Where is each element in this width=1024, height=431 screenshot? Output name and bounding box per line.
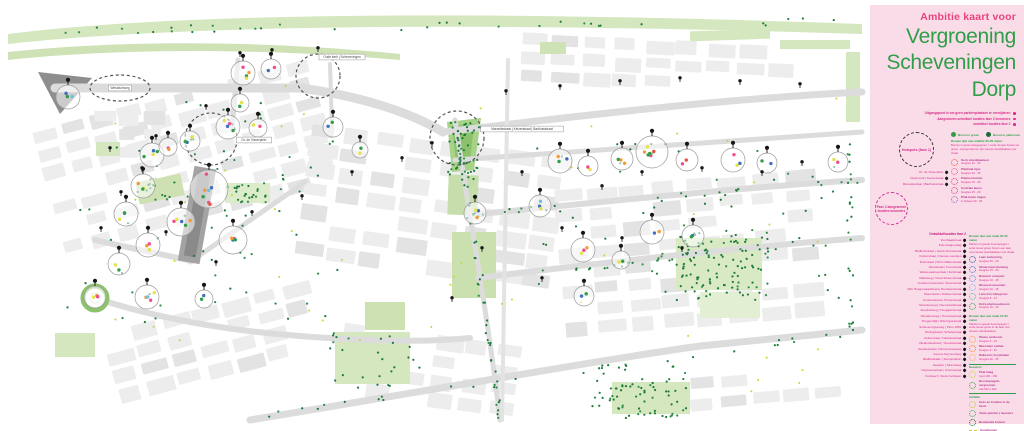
category-ring-icon: [969, 336, 976, 343]
category-label: Laan zuilvormighoogtes 15 - 20: [979, 256, 1002, 263]
tree-key: Boom in groen: [951, 132, 979, 137]
map-pin-icon: [963, 314, 967, 318]
street-item: Zeekant | Strandweg: [907, 363, 966, 368]
category-sub: rond 100 - 150: [979, 375, 997, 378]
category-label: Bestaande bomen: [979, 421, 1005, 425]
category-sub: hoogtes 15 - 20: [979, 306, 1010, 309]
group-header: Ambitie: [969, 393, 1016, 399]
map-pin-icon: [963, 276, 967, 280]
map-pin-icon: [963, 358, 967, 362]
map-pin-icon: [963, 374, 967, 378]
bullet-dot-icon: [1013, 118, 1016, 121]
cluster-marker: [721, 141, 745, 172]
category-ring-icon: [969, 401, 976, 408]
legend-category: Dakvorm | lei plataanhoogtes 20 - 25: [969, 354, 1016, 361]
tree-key-label: Boom in groen: [958, 133, 979, 137]
street-item: Marktweg | Vissershavenstraat: [907, 276, 966, 281]
legend-panel: Ambitie kaart voor Vergroening Schevenin…: [870, 5, 1024, 424]
street-item: Weststraat | Torenstraat: [907, 265, 966, 270]
svg-text:Westduinweg: Westduinweg: [110, 86, 129, 90]
map-canvas: WestduinwegDr. de VisserpleinOude kerk |…: [0, 0, 872, 431]
hotspot-item: Marcelisstraat | Badhuisstraat: [903, 182, 948, 187]
cluster-marker: [136, 226, 160, 257]
cluster-marker: [529, 188, 551, 217]
category-sub: hoogtes 6 - 10: [979, 340, 1002, 343]
legend-category: Extra plantsoenboomhoogtes 15 - 20: [969, 303, 1016, 310]
legend-category: Vaste planten | heesters: [969, 410, 1016, 417]
bullet-dot-icon: [1013, 123, 1016, 126]
category-label: Pleinen bomenhoogtes 15 - 20: [961, 177, 982, 184]
fase2-section: Ontwikkellocaties fase 2 VuurbaakstraatK…: [878, 232, 1016, 431]
category-ring-icon: [969, 371, 976, 378]
map-pin-icon: [945, 176, 949, 180]
category-sub: hoogtes 10 - 15: [961, 162, 989, 165]
map-pin-icon: [963, 309, 967, 313]
map-kicker: Ambitie kaart voor: [878, 11, 1016, 23]
legend-category: Kleine sierboomhoogtes 6 - 10: [969, 336, 1016, 343]
legend-category: Bloesem accentenhoogtes 10 - 15: [969, 284, 1016, 291]
category-ring-icon: [969, 345, 976, 352]
street-label: Weststraat | Torenstraat: [929, 265, 962, 270]
street-label: Zeekant | Strandweg: [933, 363, 962, 368]
street-label: Badhuisstraat | Jacob Pronkstraat: [915, 249, 961, 254]
map-pin-icon: [963, 331, 967, 335]
cluster-marker: [828, 145, 848, 172]
poster: WestduinwegDr. de VisserpleinOude kerk |…: [0, 0, 1024, 431]
map-pin-icon: [963, 238, 967, 242]
street-label: Neptunusstraat | Circusstraat: [921, 368, 961, 373]
hotspots-badge: Hotspots (fase 1): [899, 132, 934, 167]
cluster-marker: [135, 278, 159, 309]
legend-category: Meerstam solitairhoogtes 6 - 10: [969, 345, 1016, 352]
bullet-text: Aangewezen ontwikkel locaties fase 2 bew…: [937, 117, 1010, 121]
street-item: Kolenwagenslag: [907, 243, 966, 248]
street-item: Ankerstraat | Nautilusstraat: [907, 336, 966, 341]
map-pin-icon: [963, 347, 967, 351]
cluster-marker: [611, 141, 633, 170]
category-label: Pluk haagrond 100 - 150: [979, 371, 997, 378]
category-ring-icon: [969, 275, 976, 282]
category-sub: in beheer 20 - 25: [961, 200, 986, 203]
street-item: Keizerstraat | Nieuwe Laantjes: [907, 254, 966, 259]
street-item: Kerkwerf | Oude Kerkplein: [907, 374, 966, 379]
cluster-marker: [195, 283, 213, 308]
street-item: Havenkade | Datheenstraat: [907, 292, 966, 297]
title-line-3: Dorp: [878, 77, 1016, 103]
cluster-marker: [574, 279, 594, 306]
legend-category: Gras en kruiden in de berm: [969, 401, 1016, 409]
category-label: Meerstam solitairhoogtes 6 - 10: [979, 345, 1004, 352]
legend-category: Plantvak rijenhoogtes 10 - 15: [951, 168, 1023, 175]
street-label: Kolenwagenslag: [939, 243, 962, 248]
category-title: Gras en kruiden in de berm: [979, 401, 1016, 409]
title-line-1: Vergroening: [878, 24, 1016, 50]
fase1-section: Hotspots (fase 1) Dr. de VisserpleinOude…: [878, 132, 1016, 227]
map-pin-icon: [963, 293, 967, 297]
bullet-text: ontwikkel locaties fase 2: [973, 122, 1010, 126]
map-pin-icon: [963, 244, 967, 248]
category-title: Bestaande bomen: [979, 421, 1005, 425]
legend-category: Leivorm | klimgroenhoogtes 8 - 12: [969, 293, 1016, 300]
street-label: Keizerstraat | Nieuwe Laantjes: [920, 254, 962, 259]
legend-category: Laan zuilvormighoogtes 15 - 20: [969, 256, 1016, 263]
hotspot-item: Oude kerk | Keizerstraat: [903, 176, 948, 181]
street-label: Ankerstraat | Nautilusstraat: [924, 336, 961, 341]
hotspot-label: Dr. de Visserplein: [919, 170, 943, 175]
street-item: Scheveningseweg | Plein 1881: [907, 325, 966, 330]
intro-bullets: Uitgangspunt is om geen parkeerplaatsen …: [878, 111, 1016, 126]
hotspot-list: Dr. de VisserpleinOude kerk | Keizerstra…: [903, 170, 948, 186]
category-ring-icon: [969, 284, 976, 291]
map-title: Vergroening Scheveningen Dorp: [878, 24, 1016, 103]
title-line-2: Scheveningen: [878, 50, 1016, 76]
category-sub: hoogtes 15 - 20: [961, 181, 982, 184]
intro-bullet: Uitgangspunt is om geen parkeerplaatsen …: [878, 111, 1016, 115]
map-pin-icon: [963, 369, 967, 373]
street-item: Duinstraat | Prins Willemstraat: [907, 260, 966, 265]
street-label: Vlielandsestraat | Texelsestraat: [919, 341, 962, 346]
map-pin-icon: [963, 265, 967, 269]
street-item: Zwolsestraat | Harstenhoekweg: [907, 347, 966, 352]
cluster-marker: [640, 213, 664, 244]
note-body: Planten in goede boomspiegel = extra nie…: [969, 323, 1016, 334]
legend-note-1: Bomen lijst met ambitie 20-25 meter Bome…: [951, 140, 1023, 155]
hotspot-item: Dr. de Visserplein: [903, 170, 948, 175]
tree-key: Boom in plantsoen: [986, 132, 1020, 137]
street-item: Wassenaarsestraat | Zeilstraat: [907, 270, 966, 275]
map-pin-icon: [945, 182, 949, 186]
category-ring-icon: [951, 178, 958, 185]
tree-dot-icon: [986, 132, 991, 137]
category-sub: hoogtes 15 - 20: [979, 269, 1008, 272]
note-body: Planten in goede boomspiegel = extra nie…: [969, 243, 1016, 254]
street-label: Gevers Deynootweg: [933, 352, 961, 357]
category-label: Gras en kruiden in de berm: [979, 401, 1016, 409]
intro-bullet: Aangewezen ontwikkel locaties fase 2 bew…: [878, 117, 1016, 121]
legend-note: Bomen lijst met maat 20-25 meterPlanten …: [969, 235, 1016, 254]
street-label: Marktweg | Vissershavenstraat: [919, 276, 961, 281]
legend-note: Bomen lijst met maat 15-20 meterPlanten …: [969, 315, 1016, 334]
map-pin-icon: [963, 325, 967, 329]
street-label: Westduinweg | Tesselsestraat: [921, 314, 962, 319]
category-label: Bloesem accentenhoogtes 10 - 15: [979, 284, 1005, 291]
street-item: Zeesluisweg | Hoogaarsstraat: [907, 308, 966, 313]
category-sub: hoogtes 10 - 15: [979, 279, 1004, 282]
category-sub: hoogtes 8 - 12: [979, 297, 1008, 300]
street-label: Wassenaarsestraat | Zeilstraat: [920, 270, 962, 275]
category-label: Plantvak rijenhoogtes 10 - 15: [961, 168, 981, 175]
svg-text:Dr. de Visserplein: Dr. de Visserplein: [242, 138, 267, 142]
category-sub: hoogtes 10 - 15: [961, 172, 981, 175]
street-item: Jurriaan Kokstraat | Stevinstraat: [907, 281, 966, 286]
category-title: Vaste planten | heesters: [979, 412, 1013, 416]
category-sub: vak 100 x 100: [979, 388, 1016, 391]
category-ring-icon: [969, 303, 976, 310]
map-pin-icon: [963, 260, 967, 264]
category-ring-icon: [951, 187, 958, 194]
street-item: Westduinweg | Tesselsestraat: [907, 314, 966, 319]
svg-text:Oude kerk | Scheveningen: Oude kerk | Scheveningen: [323, 55, 361, 59]
street-label: Kerkwerf | Oude Kerkplein: [925, 374, 961, 379]
street-item: Neptunusstraat | Circusstraat: [907, 368, 966, 373]
fase1-left-column: Hotspots (fase 1) Dr. de VisserpleinOude…: [878, 132, 948, 227]
category-ring-icon: [969, 410, 976, 417]
street-label: Dirk Hoogenraadstraat | Renbaanstraat: [907, 287, 961, 292]
category-ring-icon: [951, 196, 958, 203]
cluster-marker: [548, 142, 572, 173]
street-label: Vuurbaakstraat: [941, 238, 962, 243]
street-label: Schuitenweg | Heemraadstraat: [919, 303, 961, 308]
category-ring-icon: [951, 168, 958, 175]
legend-category: Bestaande bomen: [969, 419, 1016, 426]
category-sub: hoogtes 15 - 20: [961, 191, 982, 194]
category-label: Centrale lanenhoogtes 15 - 20: [961, 187, 982, 194]
map-pin-icon: [963, 320, 967, 324]
legend-category: Pluk haagrond 100 - 150: [969, 371, 1016, 378]
cluster-marker: [636, 129, 668, 168]
svg-text:Marcelisstraat | Keizerstraat: Marcelisstraat | Keizerstraat | Badhuiss…: [491, 127, 553, 131]
cluster-marker: [323, 110, 343, 137]
map-pin-icon: [963, 352, 967, 356]
category-ring-icon: [969, 382, 976, 389]
street-item: Vlielandsestraat | Texelsestraat: [907, 341, 966, 346]
category-ring-icon: [969, 419, 976, 426]
intro-bullet: ontwikkel locaties fase 2: [878, 122, 1016, 126]
street-item: Haringstraat | Schelpstraat: [907, 330, 966, 335]
legend-category: Centrale lanenhoogtes 15 - 20: [951, 187, 1023, 194]
street-label: Duinstraat | Prins Willemstraat: [920, 260, 962, 265]
category-sub: hoogtes 15 - 20: [979, 260, 1002, 263]
map-pin-icon: [963, 298, 967, 302]
category-label: Pluk-lanen hagenin beheer 20 - 25: [961, 196, 986, 203]
street-item: Korbootstraat | Pluvierstraat: [907, 298, 966, 303]
category-ring-icon: [969, 256, 976, 263]
hotspot-label: Marcelisstraat | Badhuisstraat: [903, 182, 944, 187]
tree-key-label: Boom in plantsoen: [993, 133, 1020, 137]
streets-column: Ontwikkellocaties fase 2 VuurbaakstraatK…: [878, 232, 966, 431]
street-item: Badhuiskade | Seinpostduin: [907, 357, 966, 362]
category-ring-icon: [969, 354, 976, 361]
tree-key-row: Boom in groenBoom in plantsoen: [951, 132, 1023, 137]
legend-category: Straat meerstammighoogtes 15 - 20: [969, 266, 1016, 273]
map-pin-icon: [963, 282, 967, 286]
hotspot-label: Oude kerk | Keizerstraat: [910, 176, 943, 181]
street-item: Dirk Hoogenraadstraat | Renbaanstraat: [907, 287, 966, 292]
street-item: Vuurbaakstraat: [907, 238, 966, 243]
street-label: Korbootstraat | Pluvierstraat: [923, 298, 961, 303]
map-pin-icon: [945, 171, 949, 175]
map-pin-icon: [963, 255, 967, 259]
legend-groups-column: Bomen lijst met maat 20-25 meterPlanten …: [969, 232, 1016, 431]
map-pin-icon: [963, 287, 967, 291]
category-ring-icon: [951, 159, 958, 166]
category-label: Kleine sierboomhoogtes 6 - 10: [979, 336, 1002, 343]
bullet-text: Uitgangspunt is om geen parkeerplaatsen …: [925, 111, 1011, 115]
category-label: Kern standplaatsenhoogtes 10 - 15: [961, 159, 989, 166]
category-ring-icon: [969, 293, 976, 300]
category-label: Vaste planten | heesters: [979, 412, 1013, 416]
legend-category: Boomspiegels vergroenenvak 100 x 100: [969, 380, 1016, 391]
street-label: Zwolsestraat | Harstenhoekweg: [918, 347, 961, 352]
street-label: Havenkade | Datheenstraat: [924, 292, 962, 297]
category-sub: hoogtes 10 - 15: [979, 288, 1005, 291]
fase2-badge: Fase 2 aangewezen locaties bewoners: [875, 192, 908, 225]
legend-category: Pluk-lanen hagenin beheer 20 - 25: [951, 196, 1023, 203]
street-item: Badhuisstraat | Jacob Pronkstraat: [907, 249, 966, 254]
category-label: Dakvorm | lei plataanhoogtes 20 - 25: [979, 354, 1009, 361]
cluster-marker: [757, 146, 777, 173]
category-label: Leivorm | klimgroenhoogtes 8 - 12: [979, 293, 1008, 300]
map-pin-icon: [963, 363, 967, 367]
category-label: Straat meerstammighoogtes 15 - 20: [979, 266, 1008, 273]
category-label: Bolvorm compacthoogtes 10 - 15: [979, 275, 1004, 282]
category-sub: hoogtes 20 - 25: [979, 358, 1009, 361]
legend-category: Bolvorm compacthoogtes 10 - 15: [969, 275, 1016, 282]
map-pin-icon: [963, 304, 967, 308]
street-label: Badhuiskade | Seinpostduin: [923, 357, 961, 362]
scheveningen-map: WestduinwegDr. de VisserpleinOude kerk |…: [0, 0, 872, 431]
street-item: Gevers Deynootweg: [907, 352, 966, 357]
map-pin-icon: [963, 342, 967, 346]
map-pin-icon: [963, 249, 967, 253]
street-label: Jurriaan Kokstraat | Stevinstraat: [917, 281, 961, 286]
map-pin-icon: [963, 336, 967, 340]
tree-dot-icon: [951, 132, 956, 137]
street-label: Zeesluisweg | Hoogaarsstraat: [921, 308, 962, 313]
category-sub: hoogtes 6 - 10: [979, 349, 1004, 352]
cluster-marker: [261, 52, 281, 79]
size-class-list: Kern standplaatsenhoogtes 10 - 15Plantva…: [951, 159, 1023, 204]
note-body: Bomen in groen aangegeven = extra nieuwe…: [951, 144, 1023, 155]
street-item: Schuitenweg | Heemraadstraat: [907, 303, 966, 308]
street-label: Haringstraat | Schelpstraat: [925, 330, 962, 335]
category-label: Extra plantsoenboomhoogtes 15 - 20: [979, 303, 1010, 310]
map-pin-icon: [963, 271, 967, 275]
bullet-dot-icon: [1013, 112, 1016, 115]
legend-category: Pleinen bomenhoogtes 15 - 20: [951, 177, 1023, 184]
category-ring-icon: [969, 266, 976, 273]
street-list: VuurbaakstraatKolenwagenslagBadhuisstraa…: [907, 238, 966, 379]
street-item: Drogersdijk | Wieringsestraat: [907, 319, 966, 324]
fase1-right-column: Boom in groenBoom in plantsoen Bomen lij…: [951, 132, 1023, 227]
group-header: Heesters: [969, 364, 1016, 370]
cluster-marker: [84, 279, 106, 308]
cluster-marker: [108, 246, 130, 275]
streets-header: Ontwikkellocaties fase 2: [929, 232, 966, 236]
street-label: Scheveningseweg | Plein 1881: [919, 325, 961, 330]
category-label: Boomspiegels vergroenenvak 100 x 100: [979, 380, 1016, 391]
legend-category: Kern standplaatsenhoogtes 10 - 15: [951, 159, 1023, 166]
cluster-marker: [231, 54, 255, 85]
street-label: Drogersdijk | Wieringsestraat: [922, 319, 962, 324]
